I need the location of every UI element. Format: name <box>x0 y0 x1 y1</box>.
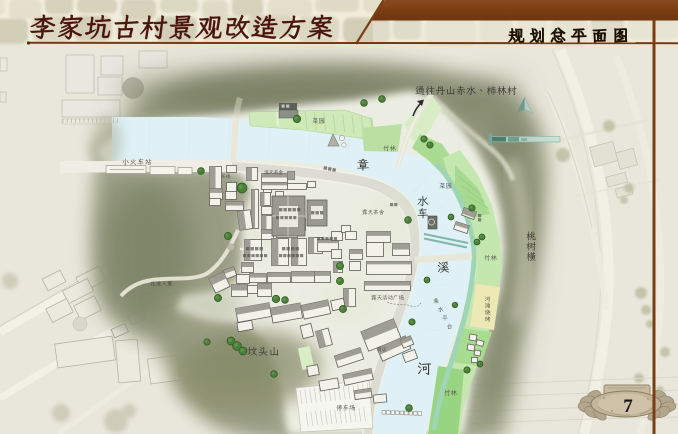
svg-text:7: 7 <box>623 396 633 417</box>
